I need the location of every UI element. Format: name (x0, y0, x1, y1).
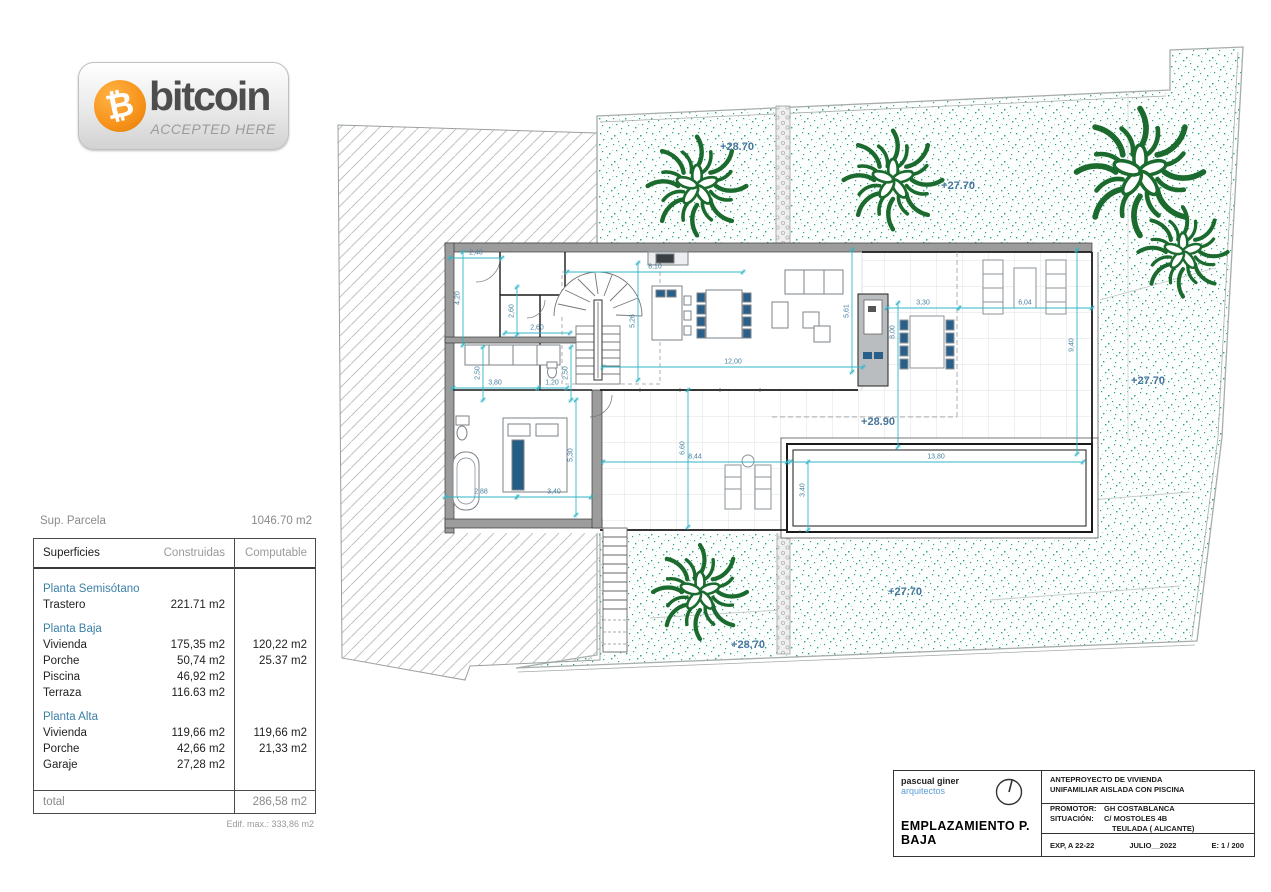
header-computable: Computable (225, 547, 315, 559)
promotor-value: GH COSTABLANCA (1104, 804, 1175, 813)
table-total-row: total 286,58 m2 (34, 790, 315, 813)
table-row: Vivienda119,66 m2119,66 m2 (34, 725, 315, 741)
parcel-summary: Sup. Parcela 1046.70 m2 (40, 515, 312, 527)
badge-tagline: ACCEPTED HERE (150, 121, 276, 137)
garden-wall-strip (776, 106, 790, 243)
promoter-row: PROMOTOR: GH COSTABLANCA SITUACIÓN: C/ M… (1042, 799, 1254, 834)
parcel-summary-value: 1046.70 m2 (251, 515, 312, 527)
drawing-title: EMPLAZAMIENTO P. BAJA (901, 819, 1041, 847)
parcel-summary-label: Sup. Parcela (40, 515, 106, 527)
table-row: Trastero221.71 m2 (34, 597, 315, 613)
reference-row: EXP, A 22-22 JULIO__2022 E: 1 / 200 (1042, 835, 1254, 856)
exterior-stair (603, 528, 627, 652)
project-line2: UNIFAMILIAR AISLADA CON PISCINA (1050, 785, 1254, 795)
header-construidas: Construidas (135, 547, 225, 559)
table-column-divider (234, 539, 235, 813)
header-superficies: Superficies (34, 547, 135, 559)
bitcoin-accepted-badge: ₿ bitcoin ACCEPTED HERE (78, 62, 289, 150)
firm-name: pascual giner (901, 776, 959, 786)
bbq-column (858, 294, 888, 386)
project-cell: ANTEPROYECTO DE VIVIENDA UNIFAMILIAR AIS… (1042, 771, 1254, 856)
date: JULIO__2022 (1129, 841, 1176, 850)
table-row: Garaje27,28 m2 (34, 757, 315, 773)
total-value: 286,58 m2 (225, 796, 315, 808)
bitcoin-coin-icon: ₿ (94, 80, 146, 132)
title-block: pascual giner arquitectos EMPLAZAMIENTO … (893, 770, 1255, 857)
table-row: Piscina46,92 m2 (34, 669, 315, 685)
table-row: Terraza116.63 m2 (34, 685, 315, 701)
surfaces-table: Superficies Construidas Computable Plant… (33, 538, 316, 814)
situacion-value2: TEULADA ( ALICANTE) (1112, 824, 1194, 833)
bitcoin-symbol: ₿ (103, 86, 137, 125)
firm-cell: pascual giner arquitectos EMPLAZAMIENTO … (894, 771, 1041, 856)
total-label: total (34, 796, 135, 808)
table-row: Vivienda175,35 m2120,22 m2 (34, 637, 315, 653)
swimming-pool (781, 438, 1098, 538)
table-row: Porche42,66 m221,33 m2 (34, 741, 315, 757)
garden-wall-strip (777, 530, 790, 654)
plan-sheet: +28.70+27.70+27.70+28.90+27.70+28.702,40… (0, 0, 1271, 892)
table-header: Superficies Construidas Computable (34, 539, 315, 569)
table-row: Planta Semisótano (34, 581, 315, 597)
promotor-label: PROMOTOR: (1050, 804, 1097, 813)
firm-type: arquitectos (901, 786, 945, 796)
area-table-rows: Planta SemisótanoTrastero221.71 m2Planta… (34, 569, 315, 773)
table-row: Porche50,74 m225.37 m2 (34, 653, 315, 669)
firm-logo-icon (994, 777, 1024, 807)
max-buildable-note: Edif. max.: 333,86 m2 (160, 819, 314, 829)
situacion-value1: C/ MOSTOLES 4B (1104, 814, 1167, 823)
situacion-label: SITUACIÓN: (1050, 814, 1094, 823)
bitcoin-wordmark: bitcoin (149, 73, 269, 120)
scale: E: 1 / 200 (1211, 841, 1244, 850)
table-row: Planta Alta (34, 709, 315, 725)
table-row: Planta Baja (34, 621, 315, 637)
project-line1: ANTEPROYECTO DE VIVIENDA (1050, 775, 1254, 785)
expediente: EXP, A 22-22 (1050, 841, 1094, 850)
